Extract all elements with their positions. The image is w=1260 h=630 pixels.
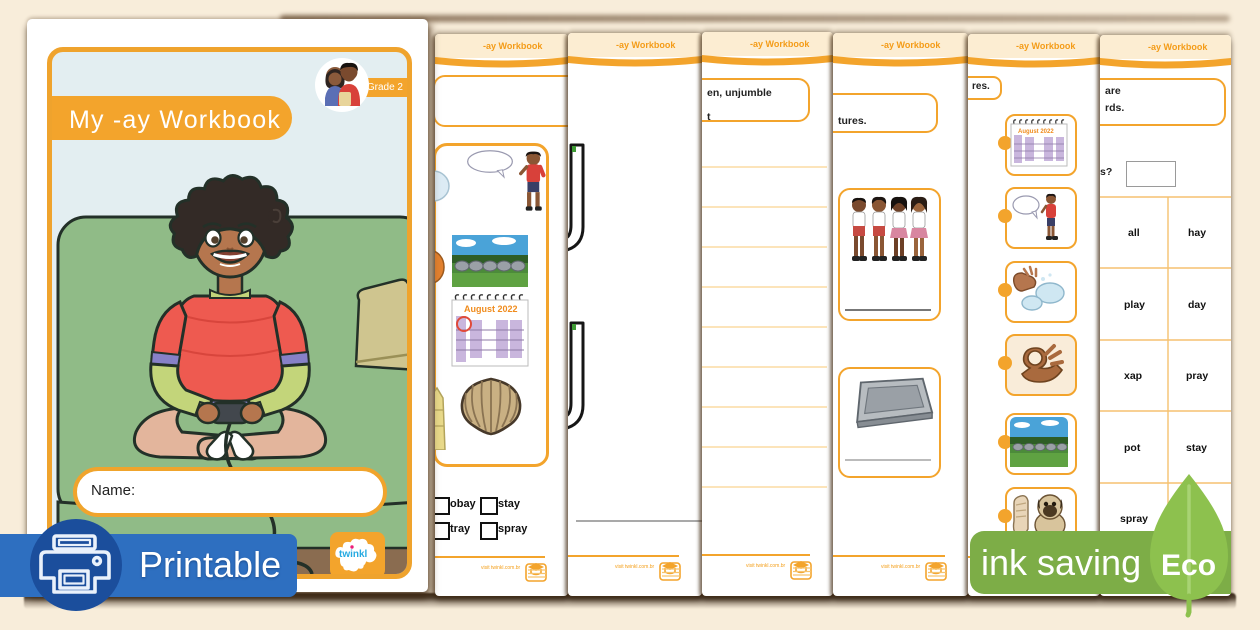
svg-text:pray: pray xyxy=(1186,370,1208,382)
svg-text:August 2022: August 2022 xyxy=(1018,129,1054,135)
svg-text:August 2022: August 2022 xyxy=(464,304,518,314)
svg-text:pot: pot xyxy=(1124,442,1141,454)
svg-text:play: play xyxy=(1124,299,1145,311)
svg-text:day: day xyxy=(1188,299,1206,311)
svg-text:xap: xap xyxy=(1124,370,1142,382)
svg-text:hay: hay xyxy=(1188,227,1206,239)
svg-text:all: all xyxy=(1128,227,1140,239)
svg-text:spray: spray xyxy=(1120,513,1148,525)
svg-text:Eco: Eco xyxy=(1161,549,1216,582)
svg-text:stay: stay xyxy=(1186,442,1207,454)
svg-text:twinkl: twinkl xyxy=(339,549,368,560)
